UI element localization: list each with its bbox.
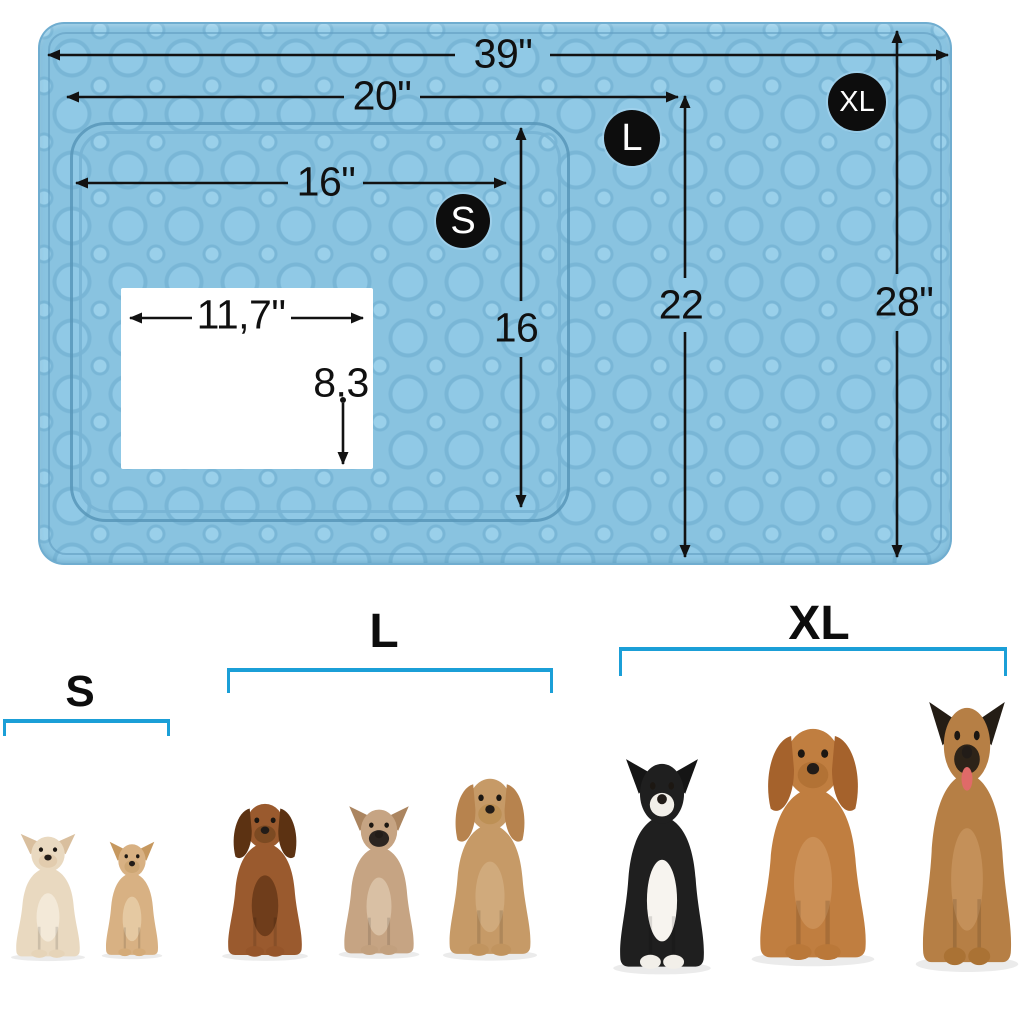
label-16-height: 16 — [494, 308, 539, 349]
group-label-l: L — [369, 608, 398, 656]
bracket-s — [3, 719, 170, 736]
dog-cockapoo-image — [434, 772, 546, 962]
dog-labrador-image — [740, 720, 886, 968]
dog-chihuahua-cream-image — [4, 832, 92, 962]
badge-size-l: L — [604, 110, 660, 166]
dog-chihuahua-tan-image — [96, 840, 168, 960]
label-11-7in: 11,7" — [197, 295, 286, 336]
label-22-height: 22 — [659, 285, 704, 326]
badge-size-xl: XL — [828, 73, 886, 131]
bracket-xl — [619, 647, 1007, 676]
label-8-3: 8.3 — [313, 363, 369, 404]
group-label-xl: XL — [788, 600, 849, 648]
dog-dachshund-image — [214, 798, 316, 962]
dog-cooling-mat-size-chart: 39" 20" 16" 11,7" 8.3 16 22 28" S L XL S… — [0, 0, 1024, 1024]
badge-size-s: S — [436, 194, 490, 248]
label-39in: 39" — [474, 34, 533, 75]
label-28in-height: 28" — [875, 282, 934, 323]
label-20in: 20" — [353, 76, 412, 117]
dog-german-shepherd-image — [906, 698, 1024, 974]
group-label-s: S — [65, 670, 94, 714]
dog-french-bulldog-image — [331, 804, 427, 960]
dog-border-collie-image — [604, 756, 720, 976]
bracket-l — [227, 668, 553, 693]
label-16in-width: 16" — [297, 162, 356, 203]
cooling-mat-xl — [38, 22, 952, 565]
